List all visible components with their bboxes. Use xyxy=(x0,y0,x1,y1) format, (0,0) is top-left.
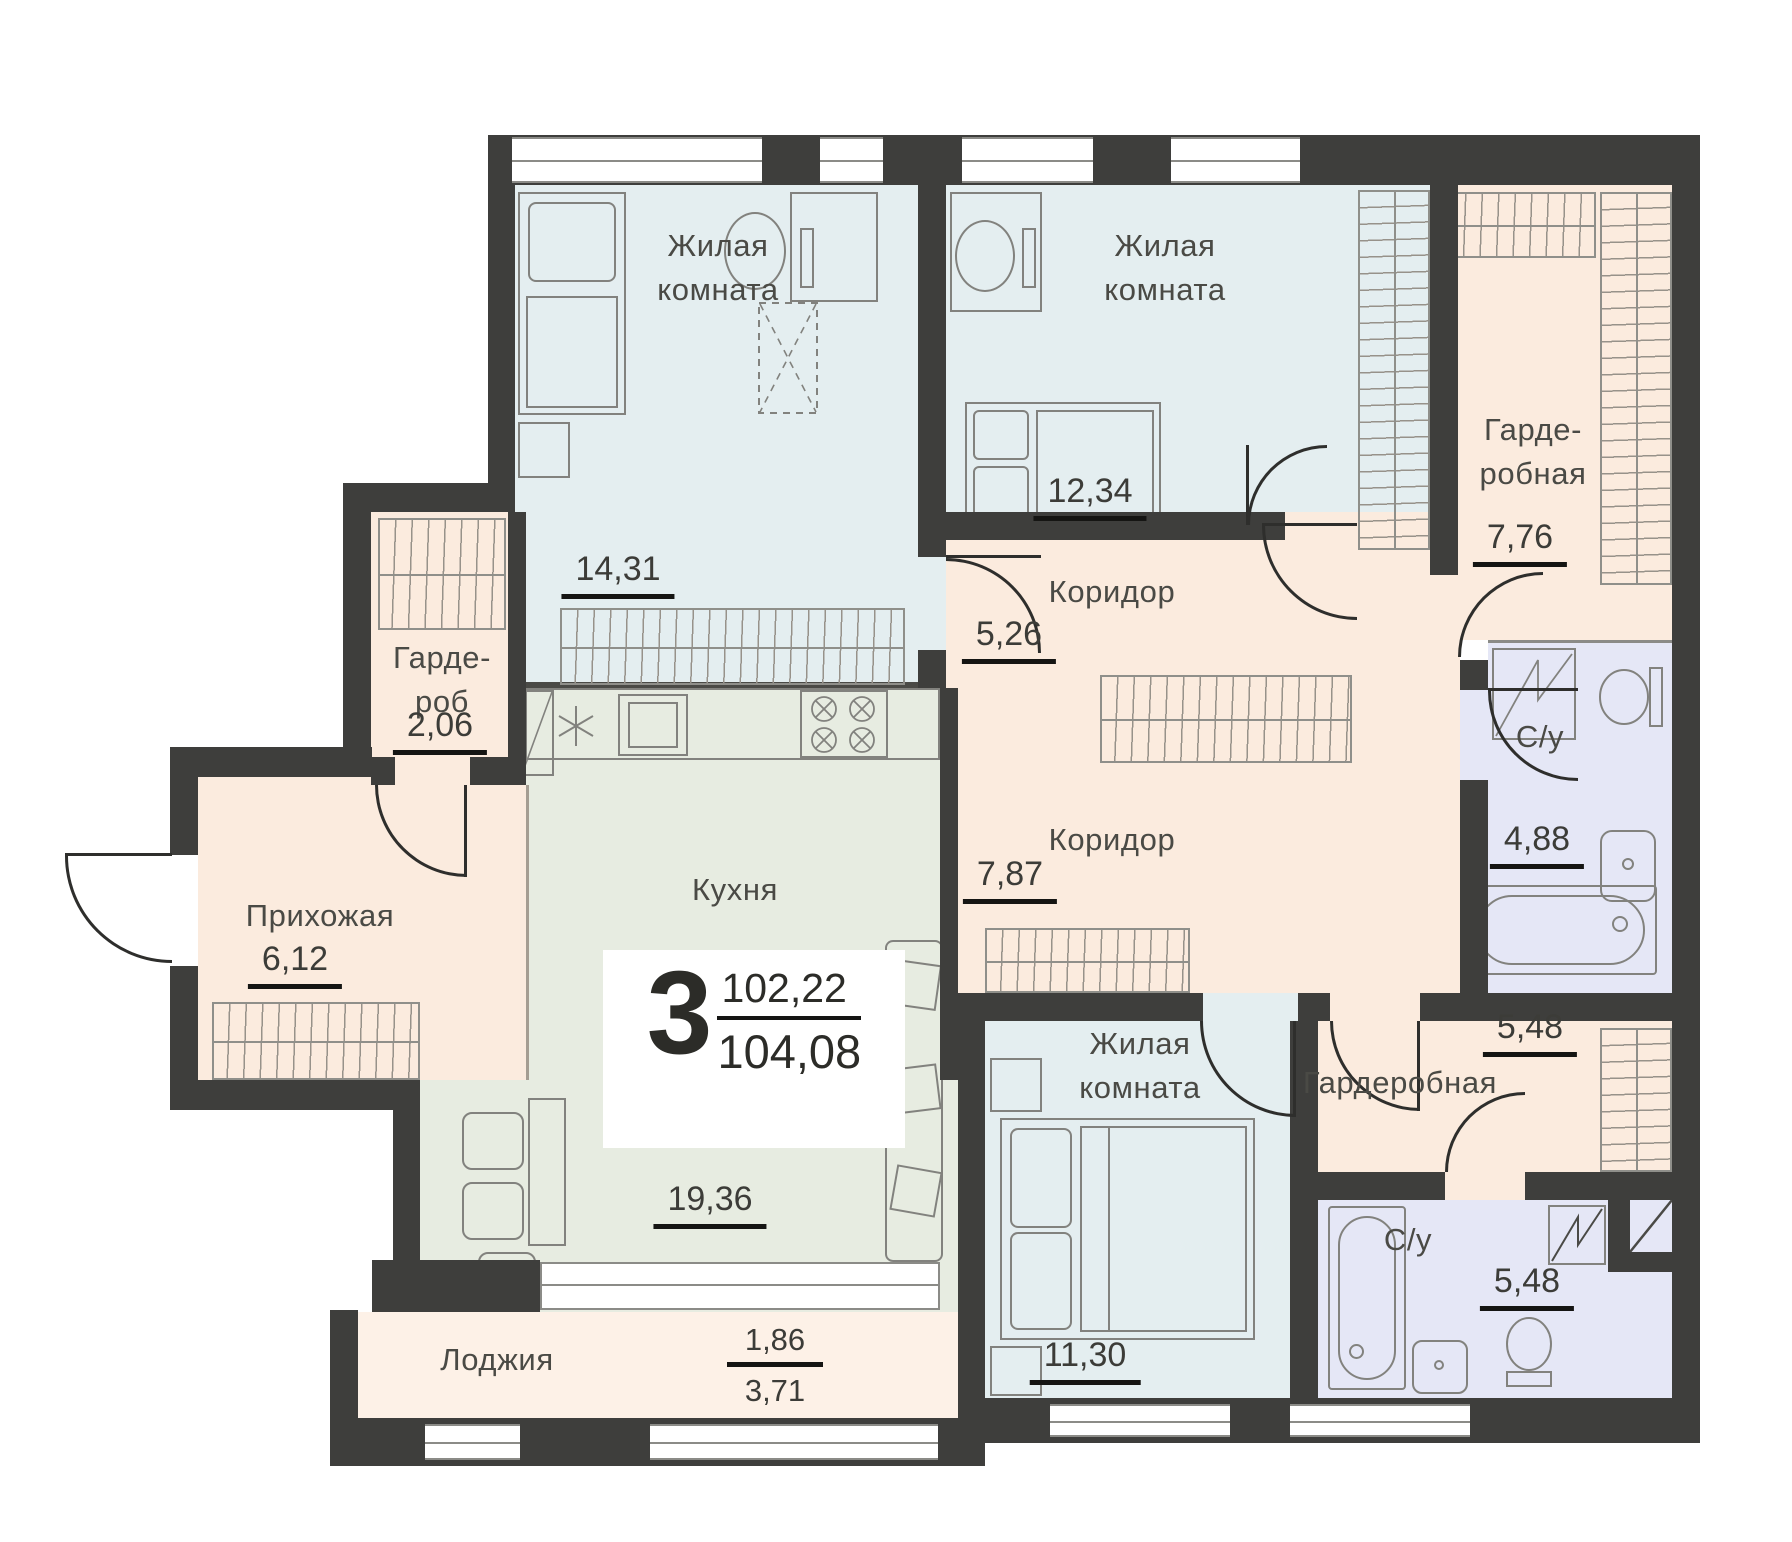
monitor-icon xyxy=(800,228,814,288)
rooms-count: 3 xyxy=(647,966,710,1060)
toilet-icon xyxy=(1596,662,1666,732)
room-label-wardrobe-top: Гарде-робная xyxy=(1480,408,1587,496)
wall-hallway-bottom xyxy=(170,1080,420,1110)
door-opening xyxy=(918,557,946,650)
wall-left-upper xyxy=(488,135,515,483)
window xyxy=(650,1424,938,1460)
pillow-icon xyxy=(528,202,616,282)
pillow-icon xyxy=(1010,1232,1072,1330)
room-label-living-1: Жилаякомната xyxy=(657,224,778,312)
room-label-bathroom-2: С/у xyxy=(1384,1218,1432,1262)
wall-wardrobe-right-bottom-a xyxy=(1318,1172,1445,1200)
chair-icon xyxy=(955,220,1015,292)
room-label-loggia: Лоджия xyxy=(440,1338,553,1382)
wardrobe-hatch-living1 xyxy=(560,608,905,685)
window xyxy=(1171,137,1300,183)
bed-blanket-icon xyxy=(526,296,618,408)
room-area-bathroom-2: 5,48 xyxy=(1480,1262,1574,1311)
dining-table-icon xyxy=(528,1098,566,1246)
loggia-area-partial: 1,86 xyxy=(727,1322,823,1367)
wall-living1-living2-b xyxy=(918,650,946,688)
floor-plan: Жилаякомната 14,31 Жилаякомната 12,34 Га… xyxy=(0,0,1792,1542)
room-area-wardrobe-right: 5,48 xyxy=(1483,1008,1577,1057)
wall-living2-right xyxy=(1430,185,1458,575)
room-label-bathroom-1: С/у xyxy=(1516,715,1564,759)
door-opening xyxy=(1460,690,1488,780)
bed-blanket-icon xyxy=(1080,1126,1247,1332)
entrance-door-arc xyxy=(65,856,172,963)
wall-wardrobe-right-bottom-b xyxy=(1525,1172,1672,1200)
total-area: 104,08 xyxy=(717,1020,861,1075)
wall-corridor2-bottom-b xyxy=(1298,993,1330,1021)
wall-kitchen-loggia-corner xyxy=(372,1260,540,1312)
room-label-corridor-2: Коридор xyxy=(1049,818,1176,862)
door-opening xyxy=(1330,993,1420,1021)
wardrobe-hatch-hallway xyxy=(212,1002,420,1080)
utility-niche-icon xyxy=(1630,1200,1672,1252)
door-opening xyxy=(1430,575,1458,655)
room-area-bathroom-1: 4,88 xyxy=(1490,820,1584,869)
door-opening xyxy=(1445,1172,1525,1200)
room-label-kitchen: Кухня xyxy=(692,868,778,912)
monitor-icon xyxy=(1022,228,1036,288)
wall-bath1-left-a xyxy=(1460,660,1488,690)
wardrobe-hatch-corridor-1 xyxy=(1100,675,1352,763)
room-area-wardrobe-small: 2,06 xyxy=(393,706,487,755)
window xyxy=(512,137,762,183)
entrance-opening xyxy=(170,855,198,966)
room-area-kitchen: 19,36 xyxy=(653,1180,766,1229)
apartment-summary: 3 102,22 104,08 xyxy=(603,950,905,1148)
boundary-hallway-kitchen xyxy=(526,785,529,1080)
wall-hallway-top xyxy=(170,747,372,777)
wall-niche-vertical xyxy=(1608,1200,1630,1255)
room-label-hallway: Прихожая xyxy=(246,894,394,938)
room-area-wardrobe-top: 7,76 xyxy=(1473,518,1567,567)
room-label-living-3: Жилаякомната xyxy=(1079,1022,1200,1110)
window xyxy=(962,137,1093,183)
pillow-icon xyxy=(1010,1128,1072,1228)
room-area-hallway: 6,12 xyxy=(248,940,342,989)
wardrobe-hatch-living2 xyxy=(1358,190,1430,550)
wall-wardrobe-small-right xyxy=(508,512,526,785)
washing-machine-icon xyxy=(1548,1205,1606,1265)
window xyxy=(1290,1404,1470,1437)
room-area-living-1: 14,31 xyxy=(561,550,674,599)
loggia-area-fraction: 1,86 3,71 xyxy=(727,1322,823,1409)
door-opening xyxy=(1203,993,1298,1021)
loggia-area-total: 3,71 xyxy=(727,1367,823,1409)
bed-split-line xyxy=(1108,1128,1110,1330)
living-area-total: 102,22 xyxy=(717,966,861,1020)
room-area-corridor-1: 5,26 xyxy=(962,615,1056,664)
room-label-wardrobe-right: Гардеробная xyxy=(1303,1061,1497,1105)
wall-step xyxy=(343,483,515,512)
wardrobe-hatch-top-shelf xyxy=(1448,192,1596,258)
sink-drain-icon xyxy=(1434,1360,1444,1370)
kitchen-star-icon xyxy=(556,706,596,746)
wall-loggia-left xyxy=(330,1310,358,1466)
folding-wardrobe-icon xyxy=(758,302,818,414)
room-area-corridor-2: 7,87 xyxy=(963,855,1057,904)
room-area-living-2: 12,34 xyxy=(1033,472,1146,521)
wardrobe-hatch-corridor-2 xyxy=(985,928,1190,993)
bathtub-drain-icon xyxy=(1612,916,1628,932)
dining-chair-icon xyxy=(462,1112,524,1170)
wall-corridor2-bottom-a xyxy=(958,993,1203,1021)
room-area-living-3: 11,30 xyxy=(1030,1336,1141,1385)
window xyxy=(1050,1404,1230,1437)
window xyxy=(425,1424,520,1460)
wall-niche-horizontal xyxy=(1608,1252,1672,1272)
pillow-icon xyxy=(973,410,1029,460)
loggia-window-sill xyxy=(540,1262,940,1310)
sink-drain-icon xyxy=(1622,858,1634,870)
wall-wardrobe-small-bottom-a xyxy=(371,757,395,785)
room-label-living-2: Жилаякомната xyxy=(1104,224,1225,312)
wardrobe-hatch-top-side xyxy=(1600,192,1672,585)
nightstand-icon xyxy=(990,1058,1042,1112)
wardrobe-hatch-small xyxy=(378,518,506,630)
stove-burners-icon xyxy=(800,690,888,758)
pillow-icon xyxy=(973,466,1029,518)
wall-wardrobe-small-bottom-b xyxy=(470,757,508,785)
wall-living1-living2-a xyxy=(918,185,946,557)
kitchen-sink-basin-icon xyxy=(628,702,678,748)
window xyxy=(820,137,883,183)
wall-right xyxy=(1672,185,1700,1443)
wall-living3-left xyxy=(958,993,985,1443)
wardrobe-hatch-right xyxy=(1600,1028,1672,1172)
wall-bath1-left-b xyxy=(1460,780,1488,993)
wall-wardrobe-small-left xyxy=(343,483,371,757)
toilet-icon xyxy=(1502,1316,1556,1390)
wall-kitchen-corridor xyxy=(940,688,958,1080)
door-leaf xyxy=(946,555,1041,558)
dining-chair-icon xyxy=(462,1182,524,1240)
bathtub-drain-icon xyxy=(1349,1344,1364,1359)
sofa-pillow-icon xyxy=(889,1164,942,1217)
room-label-corridor-1: Коридор xyxy=(1049,570,1176,614)
nightstand-icon xyxy=(518,422,570,478)
